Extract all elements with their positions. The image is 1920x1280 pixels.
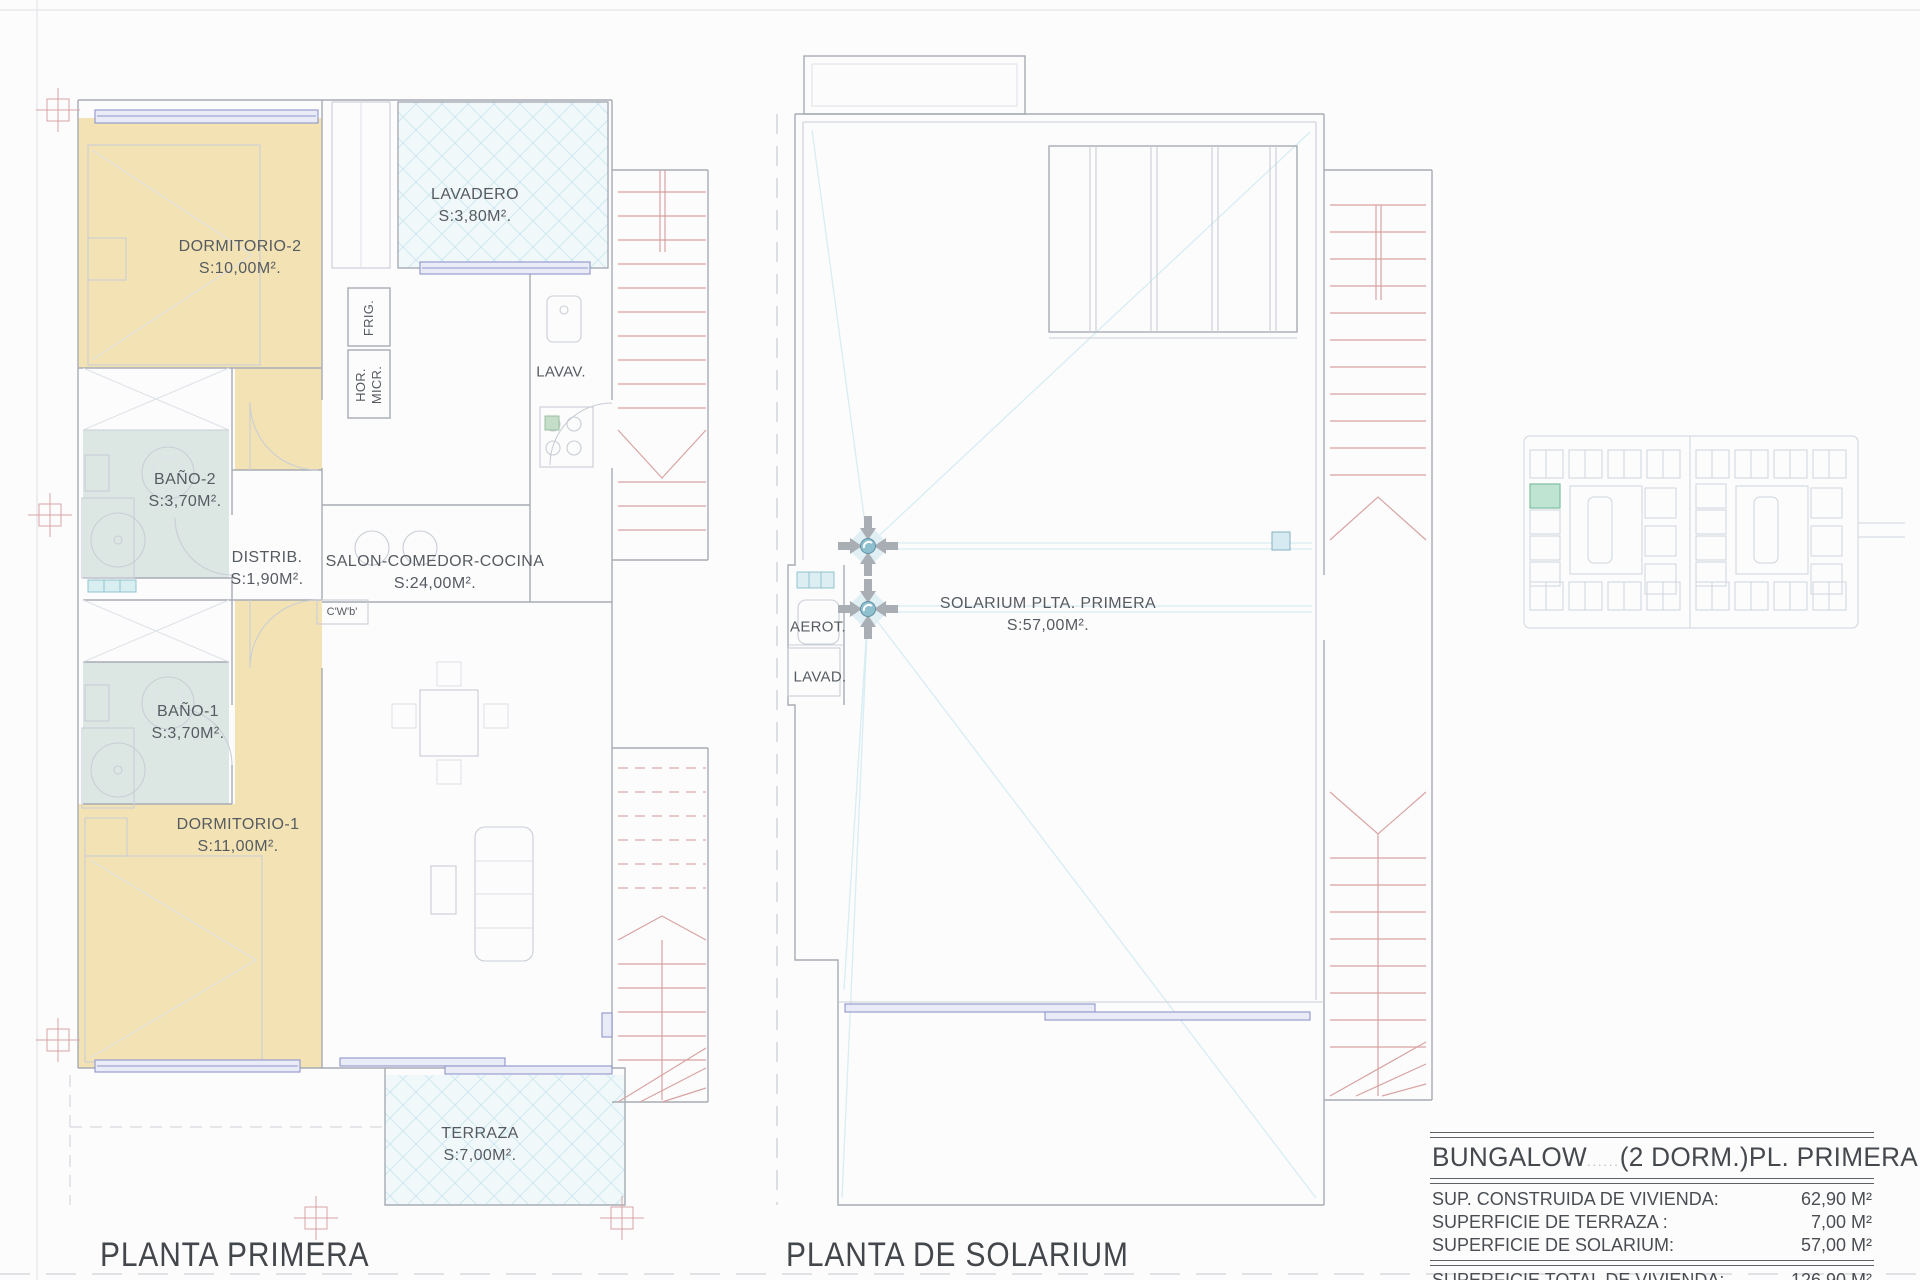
summary-row: SUPERFICIE DE TERRAZA : 7,00 M²	[1430, 1211, 1874, 1234]
summary-row-label: SUPERFICIE DE TERRAZA :	[1432, 1211, 1668, 1234]
room-area-lavadero: S:3,80M².	[439, 208, 512, 226]
fixture-label-frig: FRIG.	[361, 300, 377, 336]
fixture-label-hor: HOR.	[353, 366, 369, 404]
plan-title-primera: PLANTA PRIMERA	[100, 1236, 369, 1275]
room-label-salon: SALON-COMEDOR-COCINA	[326, 553, 545, 571]
planta-primera-drawing	[28, 88, 708, 1240]
summary-total-label: SUPERFICIE TOTAL DE VIVIENDA:	[1432, 1269, 1724, 1280]
room-label-terraza: TERRAZA	[441, 1125, 518, 1143]
room-label-bano-2: BAÑO-2	[154, 471, 216, 489]
room-area-salon: S:24,00M².	[394, 575, 476, 593]
room-label-solarium: SOLARIUM PLTA. PRIMERA	[940, 595, 1156, 613]
plan-title-solarium: PLANTA DE SOLARIUM	[786, 1236, 1129, 1275]
summary-row: SUP. CONSTRUIDA DE VIVIENDA: 62,90 M²	[1430, 1188, 1874, 1211]
summary-row-value: 57,00 M²	[1801, 1234, 1872, 1257]
fixture-label-hor-micr: HOR. MICR.	[353, 366, 385, 404]
summary-total-value: 126,90 M²	[1791, 1269, 1872, 1280]
room-label-distrib: DISTRIB.	[232, 549, 303, 567]
summary-row-value: 62,90 M²	[1801, 1188, 1872, 1211]
plan-drawing	[0, 0, 1920, 1280]
fixture-label-micr: MICR.	[369, 366, 385, 404]
floorplan-sheet: DORMITORIO-2 S:10,00M². LAVADERO S:3,80M…	[0, 0, 1920, 1280]
fixture-label-cwb: C'W'b'	[327, 606, 358, 618]
room-area-solarium: S:57,00M².	[1007, 617, 1089, 635]
site-key-plan	[1524, 436, 1905, 628]
summary-row-label: SUP. CONSTRUIDA DE VIVIENDA:	[1432, 1188, 1719, 1211]
summary-floor: PL. PRIMERA.	[1749, 1142, 1920, 1173]
summary-row-label: SUPERFICIE DE SOLARIUM:	[1432, 1234, 1674, 1257]
room-area-dormitorio-1: S:11,00M².	[197, 838, 278, 856]
summary-dorms: (2 DORM.)	[1620, 1142, 1749, 1173]
fixture-label-lavav: LAVAV.	[536, 364, 586, 381]
drain-arrows-icon	[838, 516, 898, 576]
room-area-distrib: S:1,90M².	[231, 571, 304, 589]
fixture-label-lavad: LAVAD.	[794, 669, 847, 686]
room-label-dormitorio-1: DORMITORIO-1	[177, 816, 300, 834]
summary-model: BUNGALOW	[1432, 1142, 1587, 1173]
room-label-dormitorio-2: DORMITORIO-2	[179, 238, 302, 256]
room-area-bano-2: S:3,70M².	[149, 493, 222, 511]
summary-row-value: 7,00 M²	[1811, 1211, 1872, 1234]
summary-row: SUPERFICIE DE SOLARIUM: 57,00 M²	[1430, 1234, 1874, 1257]
room-area-terraza: S:7,00M².	[444, 1147, 517, 1165]
planta-solarium-drawing	[777, 56, 1432, 1205]
summary-header: BUNGALOW ...... (2 DORM.) PL. PRIMERA.	[1430, 1138, 1861, 1178]
summary-model-gap: ......	[1587, 1154, 1620, 1169]
room-area-dormitorio-2: S:10,00M².	[199, 260, 281, 278]
drain-arrows-icon	[838, 579, 898, 639]
room-label-lavadero: LAVADERO	[431, 186, 519, 204]
fixture-label-aerot: AEROT.	[790, 619, 846, 636]
area-summary-table: BUNGALOW ...... (2 DORM.) PL. PRIMERA. S…	[1430, 1132, 1874, 1280]
room-label-bano-1: BAÑO-1	[157, 703, 219, 721]
room-area-bano-1: S:3,70M².	[152, 725, 225, 743]
highlighted-unit	[1530, 484, 1560, 508]
summary-total-row: SUPERFICIE TOTAL DE VIVIENDA: 126,90 M²	[1430, 1266, 1874, 1280]
